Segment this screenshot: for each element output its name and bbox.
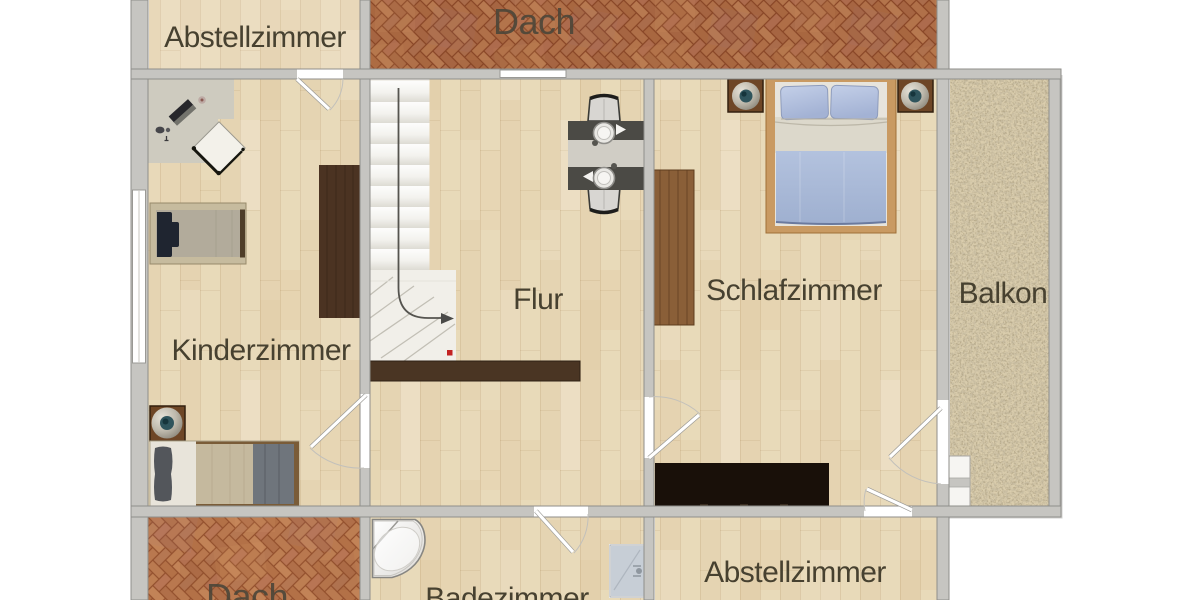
svg-text:Schlafzimmer: Schlafzimmer [706,274,882,307]
svg-text:Flur: Flur [513,283,563,316]
svg-text:Badezimmer: Badezimmer [425,582,589,600]
svg-text:Kinderzimmer: Kinderzimmer [171,334,351,367]
svg-text:Abstellzimmer: Abstellzimmer [164,21,346,54]
svg-text:Balkon: Balkon [959,277,1048,310]
svg-text:Abstellzimmer: Abstellzimmer [704,556,886,589]
svg-text:Dach: Dach [206,576,288,600]
svg-text:Dach: Dach [493,1,575,42]
